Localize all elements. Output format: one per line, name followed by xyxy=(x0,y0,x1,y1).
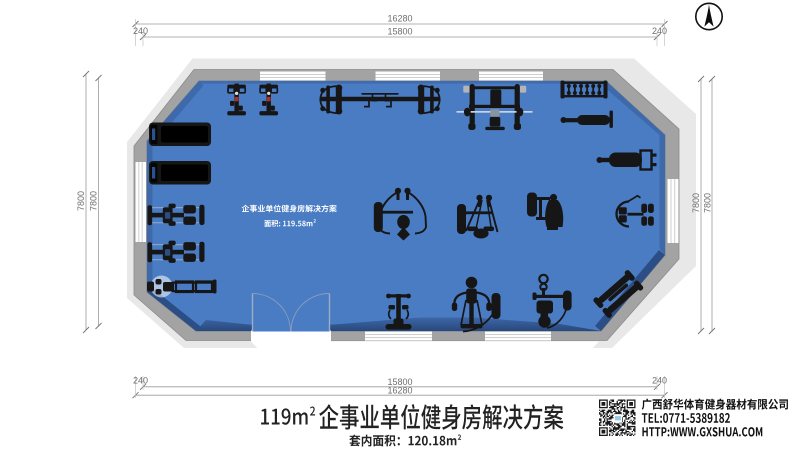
svg-text:240: 240 xyxy=(652,26,667,36)
svg-text:240: 240 xyxy=(652,376,667,386)
svg-text:16280: 16280 xyxy=(387,14,412,24)
svg-text:7800: 7800 xyxy=(89,191,99,211)
svg-text:16280: 16280 xyxy=(387,385,412,395)
svg-text:15800: 15800 xyxy=(387,27,412,37)
svg-text:7800: 7800 xyxy=(76,191,86,211)
svg-text:240: 240 xyxy=(133,376,148,386)
svg-text:7800: 7800 xyxy=(691,193,701,213)
svg-text:7800: 7800 xyxy=(703,193,713,213)
svg-text:240: 240 xyxy=(133,26,148,36)
